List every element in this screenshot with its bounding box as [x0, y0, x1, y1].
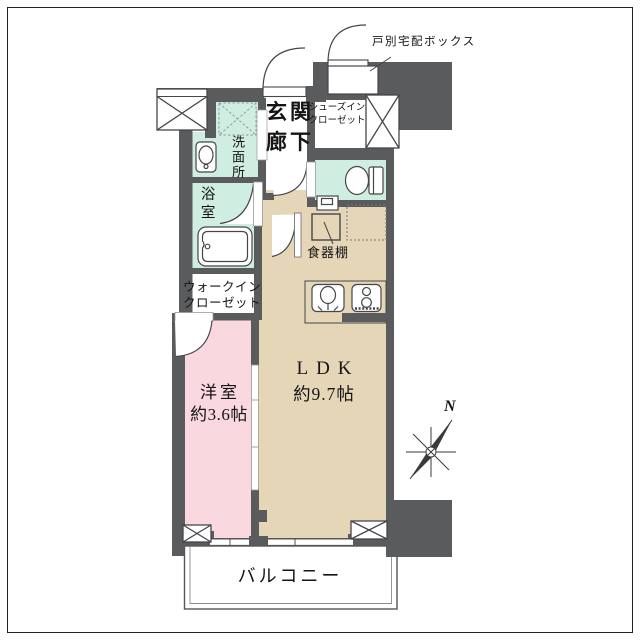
pillar-bottom-right	[351, 521, 387, 539]
bathtub-icon	[198, 227, 252, 266]
label-western-room-size: 約3.6帖	[190, 405, 248, 425]
label-walk-in-closet-1: ウォークイン	[183, 280, 261, 294]
label-western-room: 洋室	[200, 383, 240, 403]
pillar-top-left	[157, 89, 207, 130]
wall-block-bottom-right	[386, 500, 452, 557]
label-balcony: バルコニー	[238, 566, 343, 587]
entrance-door	[263, 48, 306, 97]
label-shoes-closet-2: クローゼット	[308, 116, 365, 127]
label-ldk-size: 約9.7帖	[293, 384, 355, 404]
pillar-top-right	[366, 95, 399, 148]
toilet-icon	[346, 167, 384, 195]
delivery-box-door	[328, 25, 368, 68]
compass	[406, 420, 456, 479]
label-hallway: 廊下	[266, 130, 314, 154]
label-washroom: 洗面所	[229, 135, 244, 180]
stove-icon	[352, 285, 381, 312]
label-bathroom: 浴室	[198, 186, 215, 223]
label-shoes-closet-1: シューズイン	[309, 103, 366, 114]
floor-plan-drawing	[0, 0, 640, 640]
label-delivery-box: 戸別宅配ボックス	[372, 36, 476, 49]
cupboard	[312, 214, 340, 244]
hand-basin-icon	[317, 196, 338, 210]
label-entrance: 玄関	[266, 100, 314, 124]
kitchen-sink-icon	[312, 285, 344, 312]
label-cupboard: 食器棚	[307, 246, 349, 261]
washbasin-icon	[196, 142, 216, 172]
pillar-bottom-left	[183, 525, 211, 542]
label-walk-in-closet-2: クローゼット	[183, 296, 261, 310]
kitchen-counter	[305, 281, 392, 323]
kitchen-wall-bar	[342, 313, 392, 322]
label-compass-north: N	[444, 398, 456, 416]
floor-plan: 戸別宅配ボックス 玄関 廊下 シューズイン クローゼット 洗面所 浴室 ウォーク…	[0, 0, 640, 640]
sliding-partition	[252, 365, 259, 490]
label-ldk: LDK	[296, 358, 359, 380]
